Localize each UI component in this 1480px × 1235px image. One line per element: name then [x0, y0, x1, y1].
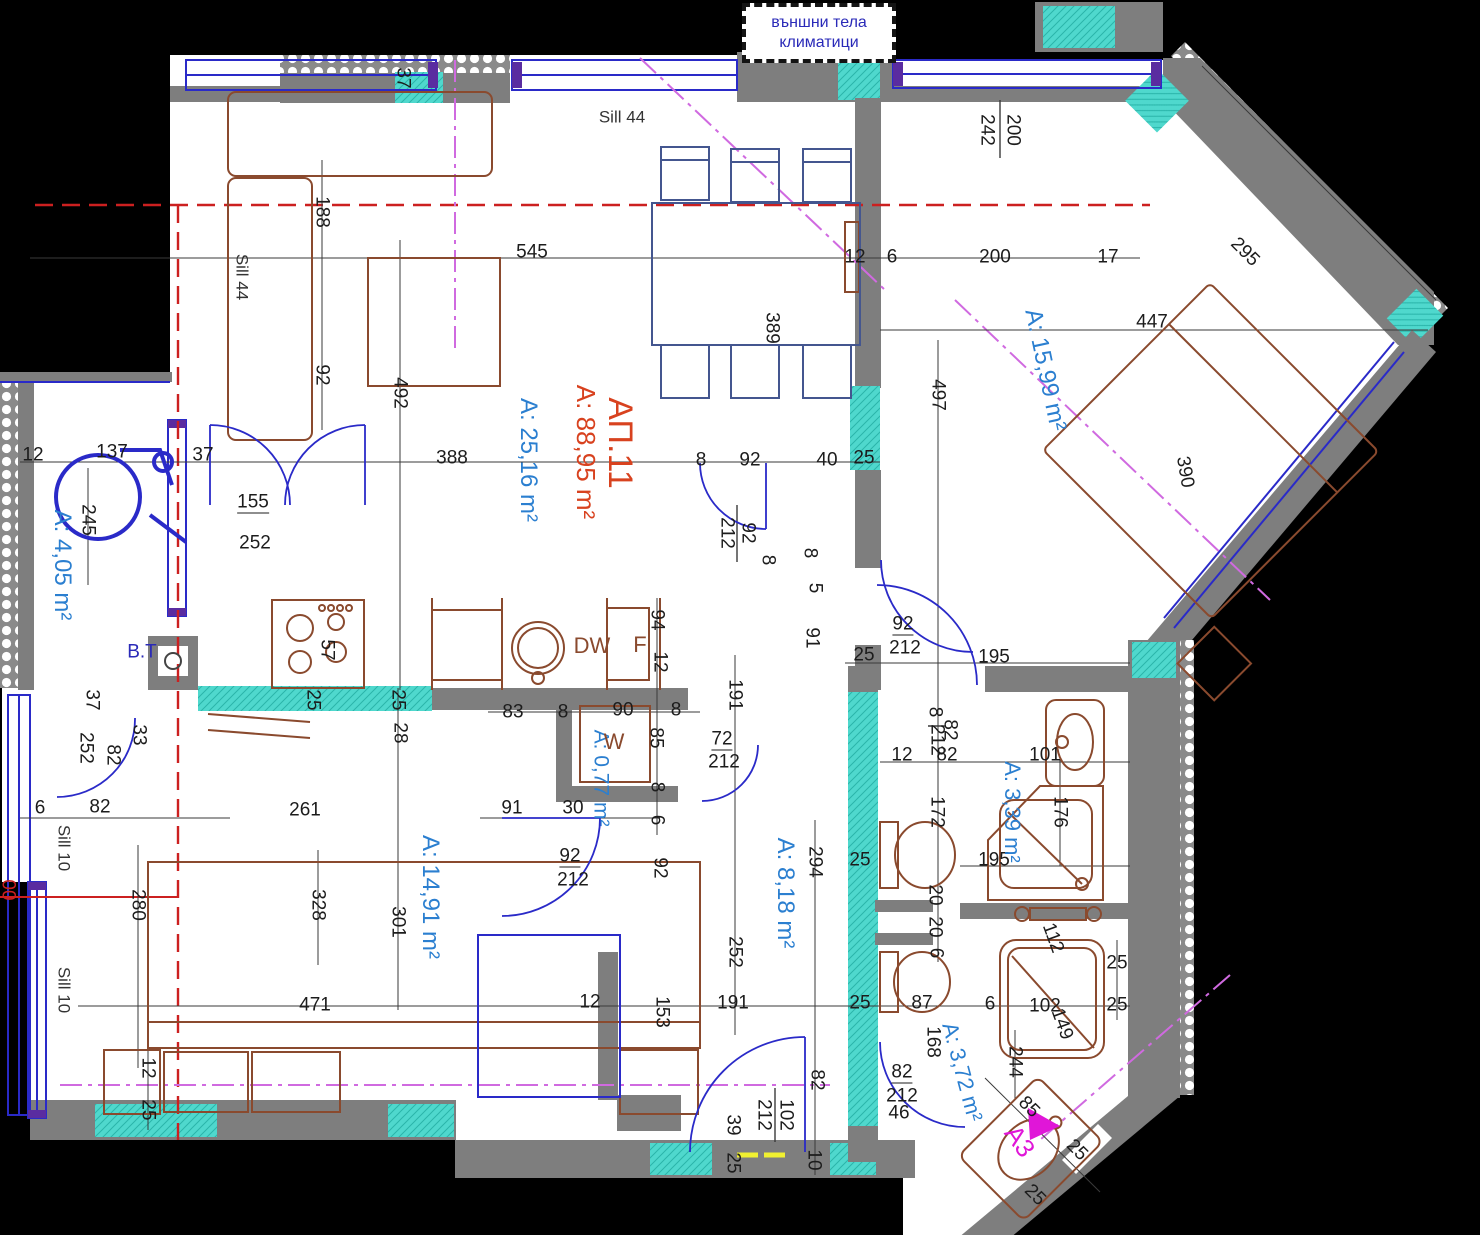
floor-plan-drawing [0, 0, 1480, 1235]
ac-units-note: външни тела климатици [742, 3, 896, 63]
note-line-2: климатици [779, 33, 858, 53]
note-line-1: външни тела [771, 13, 867, 33]
floor-plan-page: външни тела климатици Sill 4454512620017… [0, 0, 1480, 1235]
floor-outline [2, 55, 1434, 1235]
